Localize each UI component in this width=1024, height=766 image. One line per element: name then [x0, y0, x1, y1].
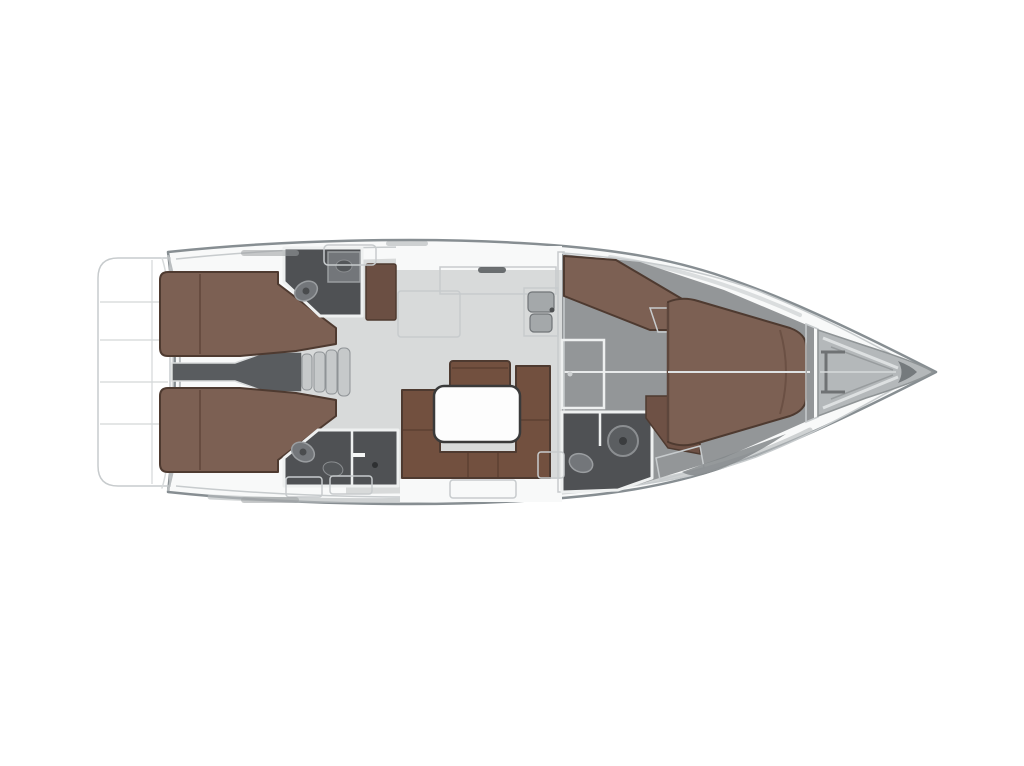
salon-table	[434, 386, 520, 442]
shower-drain-icon	[619, 437, 627, 445]
floor-plan-canvas	[0, 0, 1024, 766]
step	[338, 348, 350, 396]
wardrobe-starboard	[366, 264, 396, 320]
companionway-steps	[302, 348, 350, 396]
swim-platform-step-lines	[100, 260, 168, 484]
sink-icon	[336, 260, 352, 272]
toilet-lid-dot	[303, 288, 310, 295]
toilet-lid-dot	[300, 449, 307, 456]
deck-hatch	[241, 250, 299, 256]
deck-hatch	[241, 497, 299, 503]
step	[314, 352, 325, 392]
deck-hatch	[386, 241, 428, 246]
stove-vent-icon	[478, 267, 506, 273]
faucet-icon	[550, 308, 555, 313]
step	[326, 350, 337, 394]
shower-drain-icon	[372, 462, 378, 468]
shower-door-handle	[353, 453, 365, 457]
sink-basin-icon	[530, 314, 552, 332]
locker-handle-dot	[568, 372, 573, 377]
step	[302, 354, 312, 390]
forward-head	[562, 412, 652, 492]
yacht-floor-plan	[0, 0, 1024, 766]
